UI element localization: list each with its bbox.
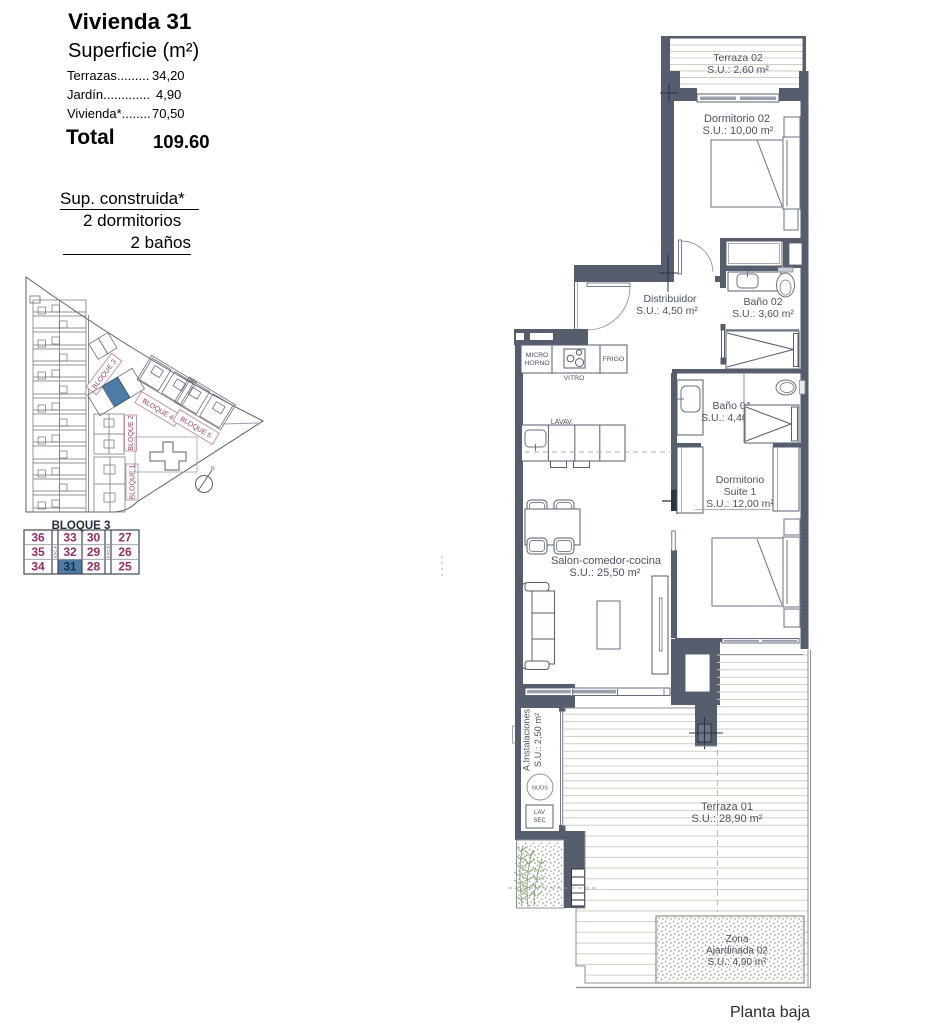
svg-text:BLOQUE 2: BLOQUE 2 <box>128 415 135 450</box>
svg-text:Dormitorio: Dormitorio <box>716 474 765 486</box>
svg-text:33: 33 <box>63 531 77 545</box>
svg-text:A.Instalaciones: A.Instalaciones <box>522 708 532 771</box>
svg-text:NUOS: NUOS <box>532 786 548 792</box>
svg-text:Distribuidor: Distribuidor <box>643 293 697 305</box>
svg-text:Terraza 02: Terraza 02 <box>713 52 763 64</box>
svg-text:Planta baja: Planta baja <box>730 1004 810 1021</box>
svg-text:MICRO: MICRO <box>526 352 549 359</box>
svg-text:Baño 02: Baño 02 <box>743 296 782 308</box>
svg-text:SEC: SEC <box>533 818 546 824</box>
svg-text:32: 32 <box>63 545 77 559</box>
svg-text:30: 30 <box>87 531 101 545</box>
svg-text:Suite 1: Suite 1 <box>724 486 757 498</box>
svg-text:28: 28 <box>87 560 101 574</box>
svg-text:FRIGO: FRIGO <box>603 356 625 363</box>
svg-text:S.U.: 28,90 m²: S.U.: 28,90 m² <box>692 813 763 825</box>
svg-text:25: 25 <box>118 560 132 574</box>
svg-text:N: N <box>211 466 215 472</box>
svg-text:S.U.: 25,50 m²: S.U.: 25,50 m² <box>570 567 641 579</box>
svg-text:S.U.: 2.60 m²: S.U.: 2.60 m² <box>707 64 769 76</box>
svg-text:LAV: LAV <box>534 810 545 816</box>
svg-text:34: 34 <box>31 560 45 574</box>
svg-text:HORNO: HORNO <box>524 360 549 367</box>
svg-text:VITRO: VITRO <box>564 375 585 382</box>
svg-text:ESC.A: ESC.A <box>53 546 58 558</box>
svg-text:S.U.: 2,50 m²: S.U.: 2,50 m² <box>533 713 543 767</box>
svg-text:ESC.B: ESC.B <box>106 546 111 558</box>
svg-text:35: 35 <box>31 545 45 559</box>
svg-text:S.U.: 10,00 m²: S.U.: 10,00 m² <box>703 125 774 137</box>
svg-text:36: 36 <box>31 531 45 545</box>
svg-text:S.U.: 4,90 m²: S.U.: 4,90 m² <box>708 957 768 968</box>
svg-text:27: 27 <box>118 531 132 545</box>
svg-text:Salon-comedor-cocina: Salon-comedor-cocina <box>551 555 662 567</box>
svg-text:S.U.: 4,50 m²: S.U.: 4,50 m² <box>636 305 698 317</box>
svg-text:S.U.: 12,00 m²: S.U.: 12,00 m² <box>706 498 774 510</box>
svg-text:S.U.: 3,60 m²: S.U.: 3,60 m² <box>732 308 794 320</box>
svg-text:Zona: Zona <box>726 934 749 945</box>
svg-text:Dormitorio 02: Dormitorio 02 <box>704 113 770 125</box>
svg-text:Ajardinada 02: Ajardinada 02 <box>706 946 768 957</box>
svg-text:BLOQUE 1: BLOQUE 1 <box>130 464 137 499</box>
svg-text:Terraza 01: Terraza 01 <box>701 801 753 813</box>
svg-text:26: 26 <box>118 545 132 559</box>
svg-text:31: 31 <box>64 562 77 574</box>
svg-text:29: 29 <box>87 545 101 559</box>
